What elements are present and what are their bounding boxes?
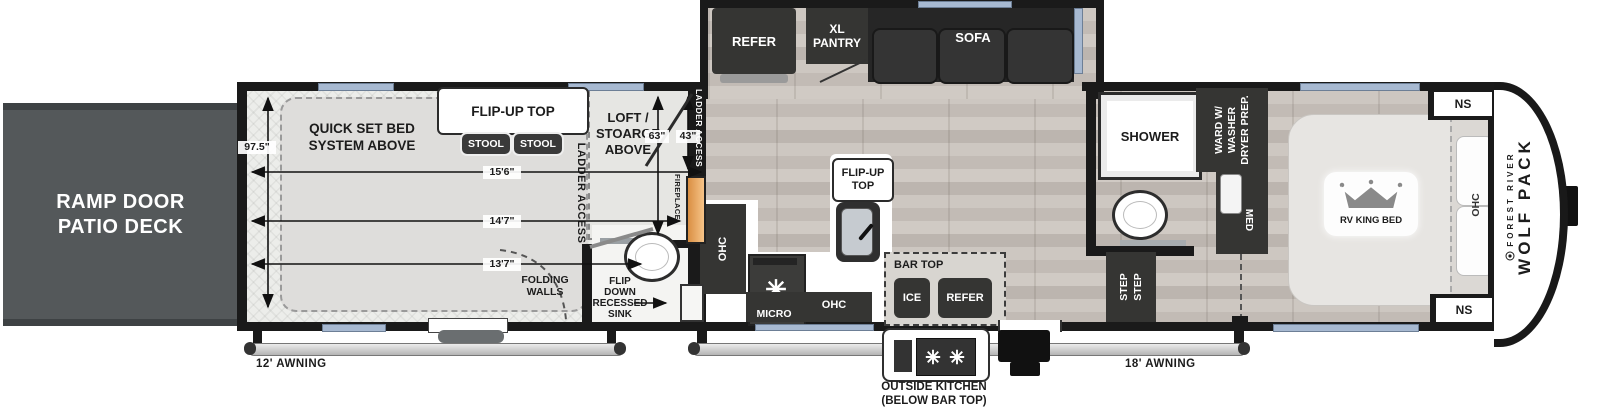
- ohc-wall-label: OHC: [716, 229, 730, 269]
- forest-river-logo-icon: [1505, 251, 1515, 261]
- bar-top-label: BAR TOP: [894, 259, 943, 271]
- kitchen-sink: [836, 202, 880, 262]
- garage-flip-up-top: FLIP-UP TOP: [437, 87, 589, 135]
- kitchen-bottom-window: [755, 324, 874, 331]
- pantry-label: XL PANTRY: [813, 22, 861, 50]
- entry-step-lower: [1010, 362, 1040, 376]
- outside-kitchen-cabinet: [894, 340, 912, 372]
- len-a-label: 15'6": [483, 166, 521, 179]
- bedroom-divider: [1240, 254, 1242, 320]
- refer-label: REFER: [732, 34, 776, 49]
- awning-cap: [688, 342, 700, 355]
- bath-toilet: [1112, 190, 1168, 240]
- awning-cap: [1238, 342, 1250, 355]
- stool-label: STOOL: [520, 138, 556, 150]
- outside-griddle: [916, 338, 976, 376]
- brand-block: FOREST RIVER WOLF PACK: [1498, 106, 1542, 306]
- ramp-door-patio-deck: RAMP DOOR PATIO DECK: [3, 103, 238, 326]
- len-c-label: 13'7": [483, 258, 521, 271]
- awning-bracket: [253, 330, 262, 344]
- stool: STOOL: [514, 134, 562, 154]
- awning-left-label: 12' AWNING: [256, 358, 327, 370]
- ohc-base-label: OHC: [806, 299, 862, 311]
- awning-bracket: [607, 330, 616, 344]
- slideout-side-window: [1074, 8, 1083, 74]
- sofa-cushion: [1006, 28, 1074, 84]
- fireplace: [686, 176, 706, 244]
- outside-kitchen: [882, 328, 990, 382]
- bar-refrigerator: REFER: [938, 278, 992, 318]
- sofa-label: SOFA: [938, 30, 1008, 45]
- slideout-sofa-window: [918, 1, 1012, 8]
- ramp-wall: [237, 82, 247, 331]
- awning-left-bar: [248, 343, 624, 356]
- ice-maker: ICE: [894, 278, 930, 318]
- quick-set-bed-label: QUICK SET BED SYSTEM ABOVE: [292, 120, 432, 154]
- stool: STOOL: [462, 134, 510, 154]
- folding-walls-label: FOLDING WALLS: [516, 274, 574, 298]
- awning-bracket: [697, 330, 707, 344]
- crown-icon: [1336, 178, 1406, 212]
- xl-pantry: XL PANTRY: [806, 8, 868, 64]
- garage-flip-sink: [680, 284, 704, 322]
- divider-stub: [1232, 316, 1248, 324]
- entry-step-upper: [998, 330, 1050, 362]
- wardrobe-label: WARD W/ WASHER DRYER PREP.: [1196, 88, 1268, 172]
- garage-top-window: [318, 83, 394, 91]
- bedroom-ohc-label: OHC: [1469, 183, 1483, 227]
- garage-step: [438, 330, 504, 343]
- toilet-bowl: [1123, 201, 1157, 229]
- shower-label: SHOWER: [1121, 129, 1180, 144]
- sofa: SOFA: [868, 8, 1074, 82]
- bed-crown-badge: RV KING BED: [1324, 172, 1418, 236]
- loft-width-label: 43": [676, 130, 700, 143]
- awning-right-label: 18' AWNING: [1125, 358, 1196, 370]
- bar-top: BAR TOP ICE REFER: [884, 252, 1006, 326]
- brand-model: WOLF PACK: [1515, 137, 1535, 275]
- awning-cap: [614, 342, 626, 355]
- len-b-label: 14'7": [483, 215, 521, 228]
- wall-ladder-access-label: LADDER ACCESS: [693, 88, 705, 168]
- stool-label: STOOL: [468, 138, 504, 150]
- refer-base: [720, 74, 788, 83]
- burner-icon: [925, 349, 941, 365]
- vanity-sink: [1220, 174, 1242, 214]
- garage-ladder-access-label: LADDER ACCESS: [573, 138, 589, 248]
- awning-cap: [244, 342, 256, 355]
- med-label: MED: [1242, 200, 1256, 240]
- nightstand-front: NS: [1434, 92, 1492, 116]
- shower: SHOWER: [1098, 92, 1202, 180]
- slideout-refrigerator: REFER: [712, 8, 796, 74]
- outside-kitchen-label: OUTSIDE KITCHEN (BELOW BAR TOP): [864, 380, 1004, 408]
- garage-flip-up-top-label: FLIP-UP TOP: [471, 104, 555, 119]
- floorplan-canvas: RAMP DOOR PATIO DECK REFER XL PANTRY SOF…: [0, 0, 1600, 412]
- flip-sink-label: FLIP DOWN RECESSED SINK: [584, 276, 656, 320]
- garage-bottom-window: [322, 324, 386, 332]
- steps-label: STEP STEP: [1106, 252, 1156, 322]
- sofa-cushion: [872, 28, 938, 84]
- burner-icon: [949, 349, 965, 365]
- garage-toilet: [624, 232, 680, 282]
- bedroom-top-window: [1300, 83, 1420, 91]
- garage-height-label: 97.5": [238, 141, 276, 154]
- range-knobs: [753, 258, 797, 265]
- kitchen-flip-up-top: FLIP-UP TOP: [832, 158, 894, 202]
- bath-wall-left: [1086, 88, 1096, 254]
- brand-maker: FOREST RIVER: [1506, 151, 1515, 246]
- nightstand-rear: NS: [1436, 298, 1492, 322]
- fireplace-label: FIREPLACE: [672, 171, 684, 223]
- deck-label: RAMP DOOR PATIO DECK: [56, 190, 185, 240]
- micro-label: MICRO: [746, 308, 802, 320]
- toilet-bowl: [635, 243, 669, 271]
- king-bed-label: RV KING BED: [1324, 215, 1418, 226]
- loft-height-label: 63": [645, 130, 669, 143]
- bedroom-bottom-window: [1273, 324, 1419, 332]
